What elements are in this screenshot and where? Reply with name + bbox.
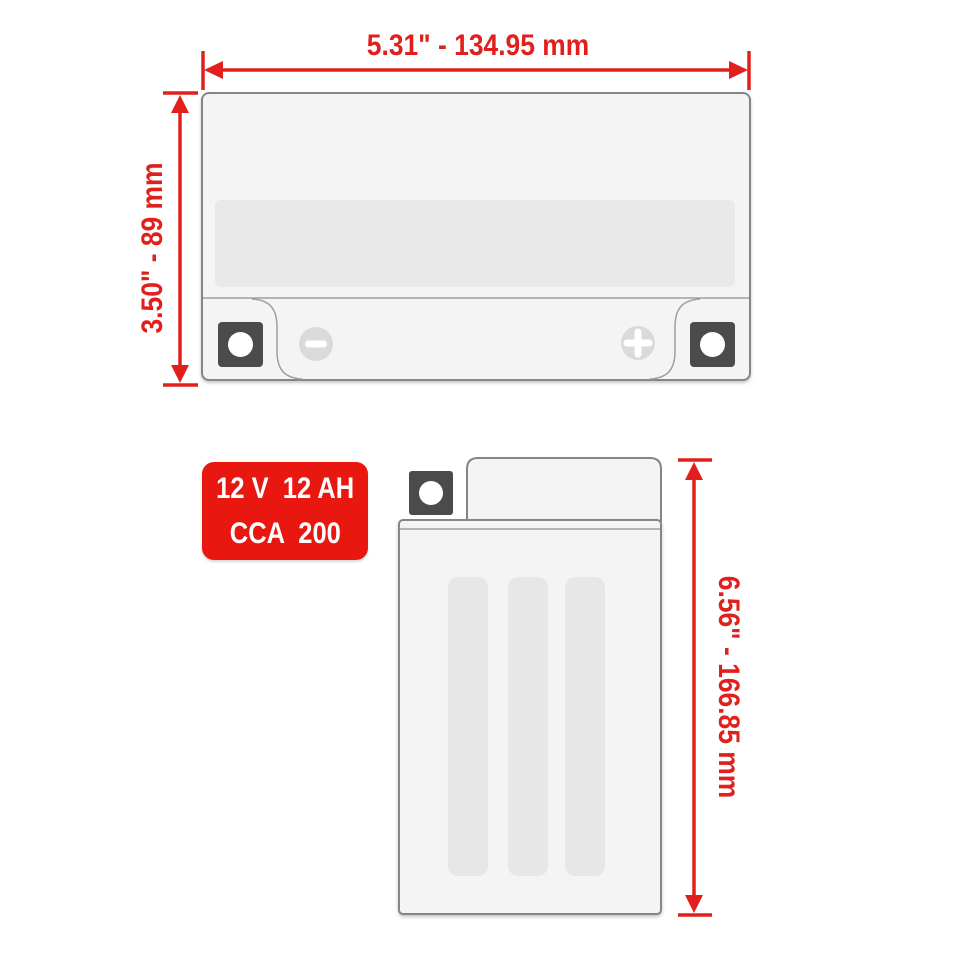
minus-terminal-icon bbox=[299, 327, 333, 361]
front-height-dimension-label: 3.50" - 89 mm bbox=[138, 162, 168, 333]
side-vent-stripe bbox=[448, 577, 488, 876]
side-height-dimension-arrow bbox=[678, 460, 712, 915]
arrowhead-up-icon bbox=[685, 462, 703, 480]
battery-front-label-area bbox=[215, 200, 735, 287]
side-lid bbox=[467, 458, 661, 521]
negative-terminal-bolt-icon bbox=[228, 332, 253, 357]
plus-terminal-icon bbox=[621, 326, 655, 360]
side-vent-stripe bbox=[565, 577, 605, 876]
arrowhead-right-icon bbox=[729, 61, 748, 79]
side-vent-stripe bbox=[508, 577, 548, 876]
side-terminal-bolt-icon bbox=[419, 481, 443, 505]
arrowhead-up-icon bbox=[171, 95, 189, 113]
positive-terminal-bolt-icon bbox=[700, 332, 725, 357]
arrowhead-left-icon bbox=[204, 61, 223, 79]
width-dimension-label: 5.31" - 134.95 mm bbox=[367, 31, 589, 61]
spec-badge: 12 V 12 AH CCA 200 bbox=[202, 462, 368, 560]
arrowhead-down-icon bbox=[685, 895, 703, 913]
spec-badge-voltage-capacity: 12 V 12 AH bbox=[216, 466, 354, 511]
diagram-canvas bbox=[0, 0, 960, 960]
battery-dimensions-diagram: 5.31" - 134.95 mm 3.50" - 89 mm 6.56" - … bbox=[0, 0, 960, 960]
side-height-dimension-label: 6.56" - 166.85 mm bbox=[713, 576, 743, 798]
battery-front-view bbox=[202, 93, 750, 380]
battery-side-view bbox=[399, 458, 661, 914]
arrowhead-down-icon bbox=[171, 365, 189, 383]
spec-badge-cca: CCA 200 bbox=[229, 511, 340, 556]
